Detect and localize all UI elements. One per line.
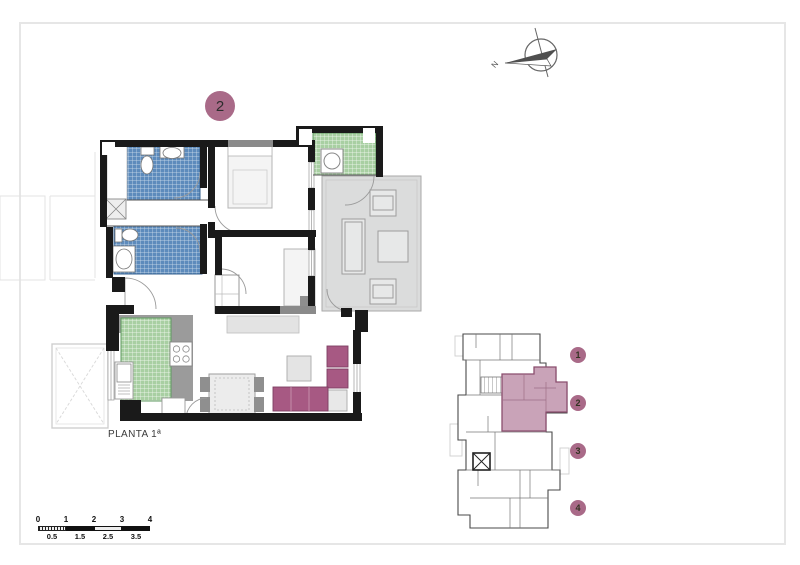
key-plan-highlighted-unit xyxy=(502,367,567,431)
key-plan-stairs xyxy=(481,377,503,393)
floor-label: PLANTA 1ª xyxy=(108,429,161,440)
scale-tick-label: 4 xyxy=(148,515,152,524)
scale-tick-label: 2 xyxy=(92,515,96,524)
scale-segment xyxy=(66,526,94,531)
scale-segment xyxy=(94,526,122,531)
scale-segment xyxy=(38,526,66,531)
scale-mid-label: 1.5 xyxy=(75,532,85,541)
bathroom-top xyxy=(127,146,200,200)
scale-bar: 0 1 2 3 4 0.5 1.5 2.5 3.5 xyxy=(34,515,158,542)
scale-mid-label: 0.5 xyxy=(47,532,57,541)
scale-tick-label: 0 xyxy=(36,515,40,524)
scale-tick-label: 1 xyxy=(64,515,68,524)
scale-bar-segments xyxy=(38,526,150,531)
scale-mid-label: 3.5 xyxy=(131,532,141,541)
key-plan-elevator xyxy=(473,453,490,470)
floor-plan-canvas xyxy=(0,0,800,565)
north-compass-icon xyxy=(505,28,557,77)
unit-marker-number: 2 xyxy=(575,398,580,408)
unit-marker-number: 1 xyxy=(575,350,580,360)
key-plan-unit-marker-1: 1 xyxy=(570,347,586,363)
floor-plan-page: 2 PLANTA 1ª N 0 1 2 3 4 0.5 1.5 2.5 3.5 … xyxy=(0,0,800,565)
unit-number-badge: 2 xyxy=(205,91,235,121)
scale-tick-label: 3 xyxy=(120,515,124,524)
adjacent-structure-lines xyxy=(0,152,95,280)
key-plan-unit-marker-4: 4 xyxy=(570,500,586,516)
hall-and-closet xyxy=(106,146,127,219)
bedroom-1 xyxy=(228,146,272,208)
bedroom-2 xyxy=(215,249,315,313)
key-plan-unit-marker-2: 2 xyxy=(570,395,586,411)
key-plan xyxy=(450,334,569,528)
side-patio xyxy=(52,344,108,428)
main-floor-plan xyxy=(0,126,421,428)
terrace xyxy=(322,176,421,311)
bathroom-bottom xyxy=(113,226,202,274)
scale-mid-label: 2.5 xyxy=(103,532,113,541)
key-plan-unit-marker-3: 3 xyxy=(570,443,586,459)
unit-number: 2 xyxy=(216,98,224,115)
scale-segment xyxy=(122,526,150,531)
unit-marker-number: 4 xyxy=(575,503,580,513)
unit-marker-number: 3 xyxy=(575,446,580,456)
living-dining xyxy=(200,316,348,414)
